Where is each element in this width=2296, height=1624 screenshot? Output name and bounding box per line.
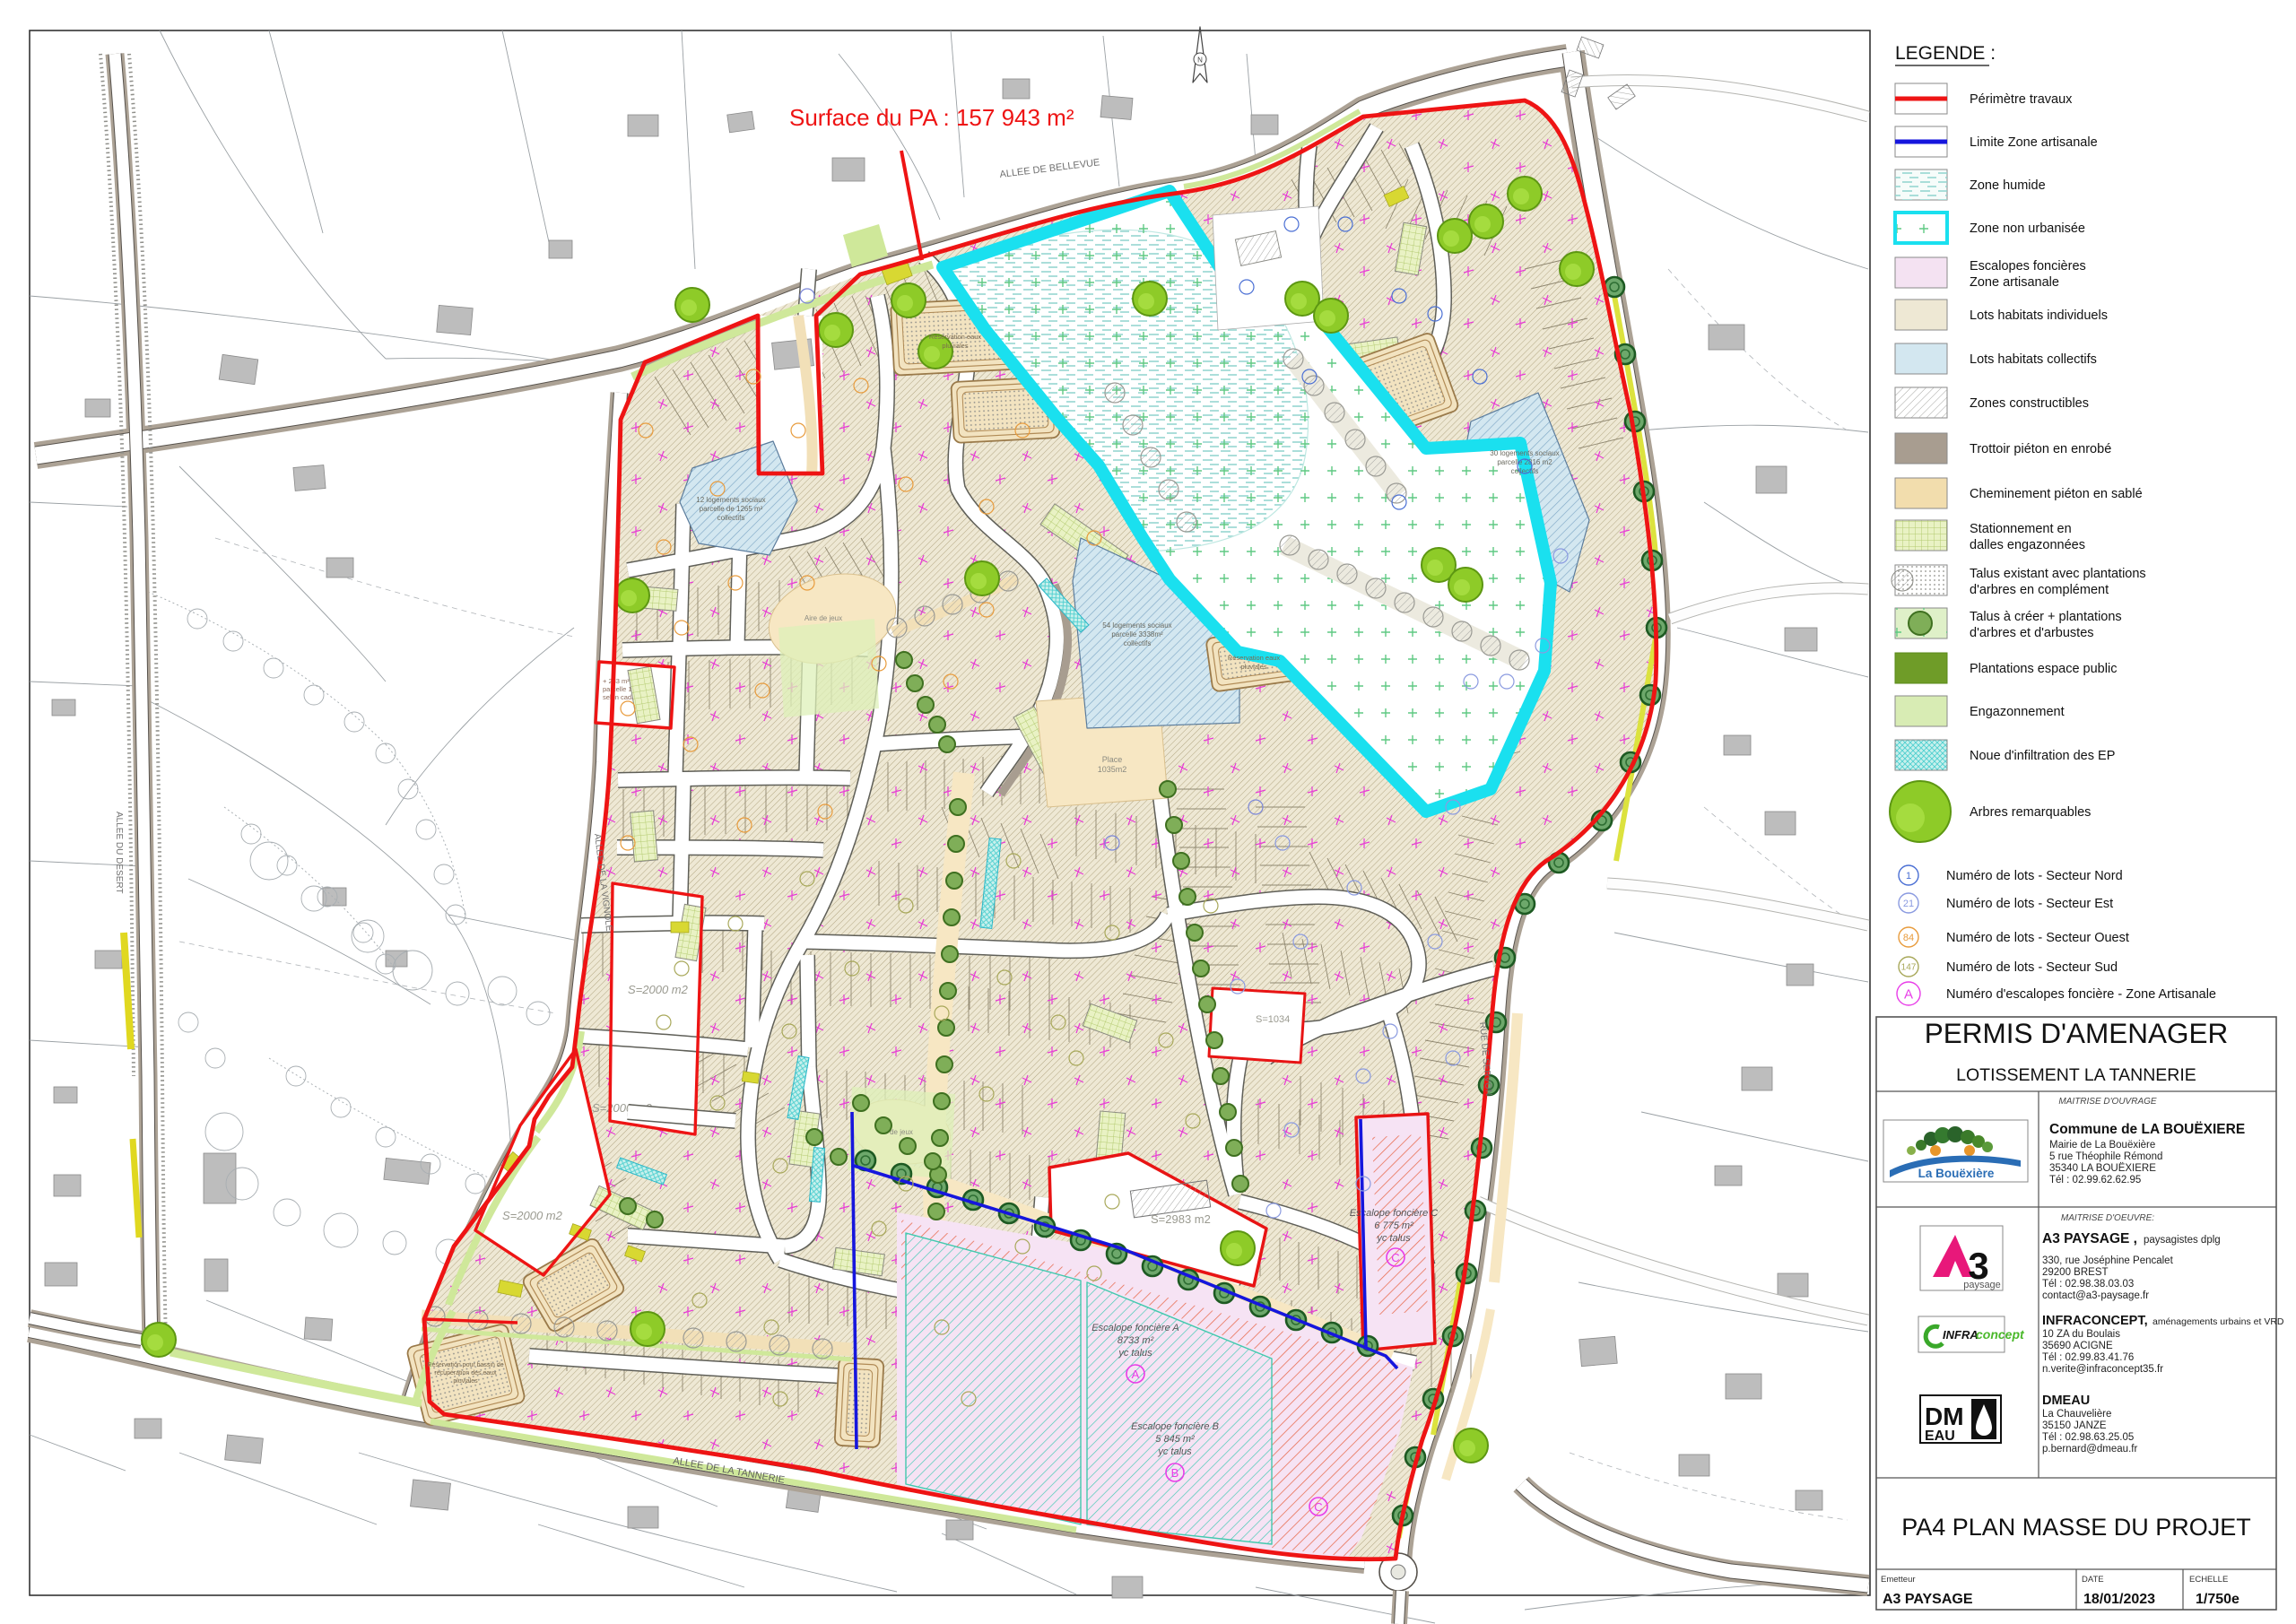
svg-text:Zones constructibles: Zones constructibles bbox=[1970, 396, 2089, 411]
svg-text:MAITRISE D'OUVRAGE: MAITRISE D'OUVRAGE bbox=[2058, 1097, 2156, 1107]
svg-text:DATE: DATE bbox=[2082, 1575, 2104, 1585]
svg-text:Place: Place bbox=[1102, 755, 1123, 764]
svg-text:Talus existant avec plantation: Talus existant avec plantations bbox=[1970, 567, 2146, 581]
svg-text:INFRACONCEPT,: INFRACONCEPT, bbox=[2042, 1314, 2148, 1328]
svg-text:Commune de LA BOUËXIERE: Commune de LA BOUËXIERE bbox=[2049, 1122, 2245, 1137]
svg-text:Numéro d'escalopes foncière -: Numéro d'escalopes foncière - Zone Artis… bbox=[1946, 987, 2216, 1002]
svg-text:p.bernard@dmeau.fr: p.bernard@dmeau.fr bbox=[2042, 1444, 2137, 1455]
svg-text:n.verite@infraconcept35.fr: n.verite@infraconcept35.fr bbox=[2042, 1364, 2163, 1375]
svg-text:Lots habitats collectifs: Lots habitats collectifs bbox=[1970, 352, 2097, 367]
svg-text:paysagistes dplg: paysagistes dplg bbox=[2144, 1235, 2221, 1246]
svg-text:Tél : 02.99.83.41.76: Tél : 02.99.83.41.76 bbox=[2042, 1352, 2134, 1363]
svg-text:1: 1 bbox=[1906, 871, 1911, 881]
svg-text:18/01/2023: 18/01/2023 bbox=[2083, 1592, 2155, 1607]
svg-text:Réservation eaux: Réservation eaux bbox=[929, 333, 982, 341]
svg-text:EAU: EAU bbox=[1925, 1429, 1955, 1444]
svg-text:29200 BREST: 29200 BREST bbox=[2042, 1267, 2109, 1278]
svg-text:Lots habitats individuels: Lots habitats individuels bbox=[1970, 308, 2108, 323]
svg-text:Mairie de La Bouëxière: Mairie de La Bouëxière bbox=[2049, 1140, 2155, 1151]
svg-text:Escalope foncière A: Escalope foncière A bbox=[1091, 1323, 1178, 1333]
svg-text:pluviales: pluviales bbox=[1240, 663, 1266, 671]
svg-text:Cheminement piéton en sablé: Cheminement piéton en sablé bbox=[1970, 487, 2143, 501]
svg-text:Noue d'infiltration des EP: Noue d'infiltration des EP bbox=[1970, 749, 2115, 763]
svg-text:Limite Zone artisanale: Limite Zone artisanale bbox=[1970, 135, 2098, 150]
svg-text:Escalopes foncières: Escalopes foncières bbox=[1970, 259, 2086, 274]
svg-text:ALLEE DU DESERT: ALLEE DU DESERT bbox=[114, 812, 124, 894]
svg-text:1/750e: 1/750e bbox=[2196, 1592, 2239, 1607]
svg-text:C: C bbox=[1391, 1251, 1399, 1264]
svg-text:Numéro de lots - Secteur Sud: Numéro de lots - Secteur Sud bbox=[1946, 960, 2118, 975]
svg-text:S=1034: S=1034 bbox=[1256, 1014, 1290, 1025]
svg-text:Surface du PA : 157 943 m²: Surface du PA : 157 943 m² bbox=[789, 104, 1074, 131]
svg-text:C: C bbox=[1314, 1500, 1322, 1514]
svg-text:LEGENDE :: LEGENDE : bbox=[1895, 43, 1996, 64]
svg-text:de jeux: de jeux bbox=[890, 1128, 913, 1136]
svg-text:6 775 m²: 6 775 m² bbox=[1374, 1220, 1413, 1231]
svg-text:collectifs: collectifs bbox=[1511, 467, 1539, 475]
svg-text:Périmètre travaux: Périmètre travaux bbox=[1970, 92, 2073, 107]
svg-text:Plantations espace public: Plantations espace public bbox=[1970, 662, 2117, 676]
svg-text:collectifs: collectifs bbox=[1124, 639, 1152, 647]
svg-text:PA4 PLAN MASSE DU PROJET: PA4 PLAN MASSE DU PROJET bbox=[1901, 1514, 2251, 1541]
svg-text:Tél : 02.99.62.62.95: Tél : 02.99.62.62.95 bbox=[2049, 1175, 2141, 1185]
svg-text:Stationnement en: Stationnement en bbox=[1970, 522, 2072, 536]
svg-text:35340 LA BOUËXIERE: 35340 LA BOUËXIERE bbox=[2049, 1163, 2156, 1174]
svg-text:A3 PAYSAGE ,: A3 PAYSAGE , bbox=[2042, 1231, 2137, 1246]
svg-text:Engazonnement: Engazonnement bbox=[1970, 705, 2065, 719]
svg-text:yc talus: yc talus bbox=[1376, 1233, 1411, 1244]
svg-text:Emetteur: Emetteur bbox=[1881, 1575, 1916, 1585]
svg-text:Aire de jeux: Aire de jeux bbox=[804, 614, 842, 622]
svg-text:paysage: paysage bbox=[1963, 1280, 2001, 1290]
svg-text:54 logements sociaux: 54 logements sociaux bbox=[1102, 621, 1171, 630]
svg-text:21: 21 bbox=[1903, 899, 1914, 909]
svg-text:Réservation eaux: Réservation eaux bbox=[1228, 654, 1281, 662]
svg-text:Talus à créer + plantations: Talus à créer + plantations bbox=[1970, 610, 2122, 624]
svg-text:12 logements sociaux: 12 logements sociaux bbox=[696, 496, 765, 504]
svg-text:Réservation pour bassin de: Réservation pour bassin de bbox=[427, 1362, 503, 1368]
svg-text:LOTISSEMENT LA TANNERIE: LOTISSEMENT LA TANNERIE bbox=[1956, 1065, 2196, 1085]
svg-text:dalles engazonnées: dalles engazonnées bbox=[1970, 538, 2085, 552]
svg-text:84: 84 bbox=[1903, 933, 1914, 943]
svg-text:S=2983 m2: S=2983 m2 bbox=[1151, 1212, 1211, 1226]
svg-text:pluviales: pluviales bbox=[453, 1378, 478, 1385]
svg-text:Zone artisanale: Zone artisanale bbox=[1970, 275, 2059, 290]
svg-text:Zone non urbanisée: Zone non urbanisée bbox=[1970, 221, 2085, 236]
svg-text:10 ZA du Boulais: 10 ZA du Boulais bbox=[2042, 1329, 2120, 1340]
svg-text:collectifs: collectifs bbox=[717, 514, 745, 522]
svg-text:5 845 m²: 5 845 m² bbox=[1155, 1434, 1195, 1445]
svg-text:Numéro de lots - Secteur Nord: Numéro de lots - Secteur Nord bbox=[1946, 869, 2123, 883]
svg-text:5 rue Théophile Rémond: 5 rue Théophile Rémond bbox=[2049, 1151, 2162, 1162]
svg-text:Tél : 02.98.63.25.05: Tél : 02.98.63.25.05 bbox=[2042, 1432, 2134, 1443]
svg-text:30 logements sociaux: 30 logements sociaux bbox=[1490, 449, 1559, 457]
svg-text:Numéro de lots - Secteur Ouest: Numéro de lots - Secteur Ouest bbox=[1946, 931, 2129, 945]
svg-text:Tél : 02.98.38.03.03: Tél : 02.98.38.03.03 bbox=[2042, 1279, 2134, 1290]
svg-text:A: A bbox=[1904, 986, 1913, 1002]
svg-text:Trottoir piéton en enrobé: Trottoir piéton en enrobé bbox=[1970, 442, 2111, 456]
svg-text:pluviales: pluviales bbox=[942, 342, 968, 350]
svg-text:Numéro de lots - Secteur Est: Numéro de lots - Secteur Est bbox=[1946, 897, 2113, 911]
svg-text:contact@a3-paysage.fr: contact@a3-paysage.fr bbox=[2042, 1290, 2149, 1301]
svg-text:PERMIS D'AMENAGER: PERMIS D'AMENAGER bbox=[1925, 1017, 2229, 1049]
svg-text:ECHELLE: ECHELLE bbox=[2189, 1575, 2228, 1585]
svg-text:S=2000 m2: S=2000 m2 bbox=[628, 983, 689, 996]
svg-text:INFRA: INFRA bbox=[1943, 1328, 1979, 1342]
svg-text:Escalope foncière B: Escalope foncière B bbox=[1131, 1421, 1219, 1432]
svg-text:8733 m²: 8733 m² bbox=[1118, 1335, 1154, 1346]
svg-text:yc talus: yc talus bbox=[1157, 1446, 1192, 1457]
svg-text:B: B bbox=[1171, 1466, 1179, 1480]
svg-text:La Bouëxière: La Bouëxière bbox=[1918, 1167, 1995, 1180]
svg-text:d'arbres en complément: d'arbres en complément bbox=[1970, 583, 2109, 597]
svg-text:DM: DM bbox=[1925, 1403, 1964, 1430]
svg-text:A3 PAYSAGE: A3 PAYSAGE bbox=[1883, 1592, 1973, 1607]
svg-text:Zone humide: Zone humide bbox=[1970, 178, 2046, 193]
svg-text:147: 147 bbox=[1901, 963, 1917, 973]
svg-text:S=2000 m2: S=2000 m2 bbox=[502, 1209, 563, 1222]
svg-text:d'arbres et d'arbustes: d'arbres et d'arbustes bbox=[1970, 626, 2094, 640]
svg-text:La Chauvelière: La Chauvelière bbox=[2042, 1409, 2111, 1420]
svg-text:N: N bbox=[1197, 56, 1203, 65]
svg-text:330, rue Joséphine Pencalet: 330, rue Joséphine Pencalet bbox=[2042, 1255, 2174, 1266]
svg-text:concept: concept bbox=[1976, 1327, 2025, 1342]
svg-text:MAITRISE D'OEUVRE:: MAITRISE D'OEUVRE: bbox=[2061, 1213, 2154, 1223]
svg-text:aménagements urbains et VRD: aménagements urbains et VRD bbox=[2152, 1316, 2284, 1327]
svg-text:35690 ACIGNE: 35690 ACIGNE bbox=[2042, 1341, 2113, 1351]
svg-text:A: A bbox=[1132, 1368, 1140, 1381]
svg-text:récupération des eaux: récupération des eaux bbox=[434, 1370, 497, 1376]
svg-text:DMEAU: DMEAU bbox=[2042, 1394, 2090, 1408]
svg-text:1035m2: 1035m2 bbox=[1098, 765, 1127, 774]
svg-text:35150 JANZE: 35150 JANZE bbox=[2042, 1420, 2107, 1431]
svg-text:yc talus: yc talus bbox=[1118, 1348, 1152, 1359]
svg-text:Arbres remarquables: Arbres remarquables bbox=[1970, 805, 2091, 820]
svg-text:parcelle 3338m²: parcelle 3338m² bbox=[1111, 630, 1163, 638]
svg-text:parcelle de 1265 m²: parcelle de 1265 m² bbox=[700, 505, 763, 513]
